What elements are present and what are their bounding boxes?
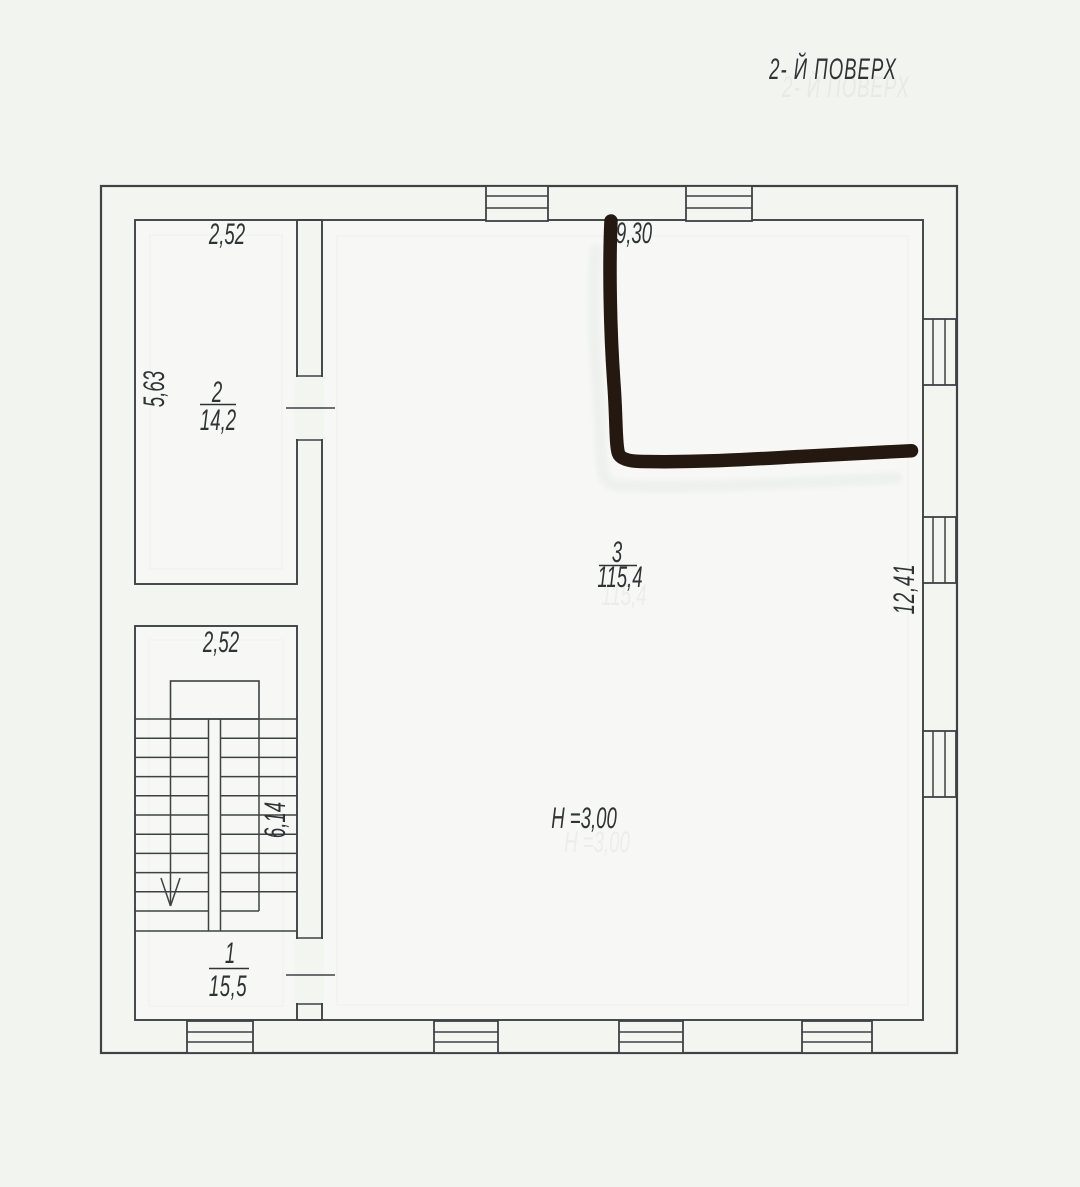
svg-text:6,14: 6,14	[259, 802, 293, 838]
svg-text:2,52: 2,52	[208, 218, 245, 252]
svg-text:5,63: 5,63	[138, 371, 172, 407]
svg-text:2,52: 2,52	[202, 626, 239, 660]
svg-text:15,5: 15,5	[209, 970, 247, 1004]
svg-text:12,41: 12,41	[888, 564, 922, 615]
svg-text:9,30: 9,30	[616, 217, 652, 251]
svg-text:115,4: 115,4	[597, 561, 642, 595]
svg-text:Н =3,00: Н =3,00	[551, 802, 617, 836]
svg-text:14,2: 14,2	[200, 404, 236, 438]
svg-text:1: 1	[225, 937, 235, 971]
svg-text:2- Й ПОВЕРХ: 2- Й ПОВЕРХ	[768, 50, 896, 86]
